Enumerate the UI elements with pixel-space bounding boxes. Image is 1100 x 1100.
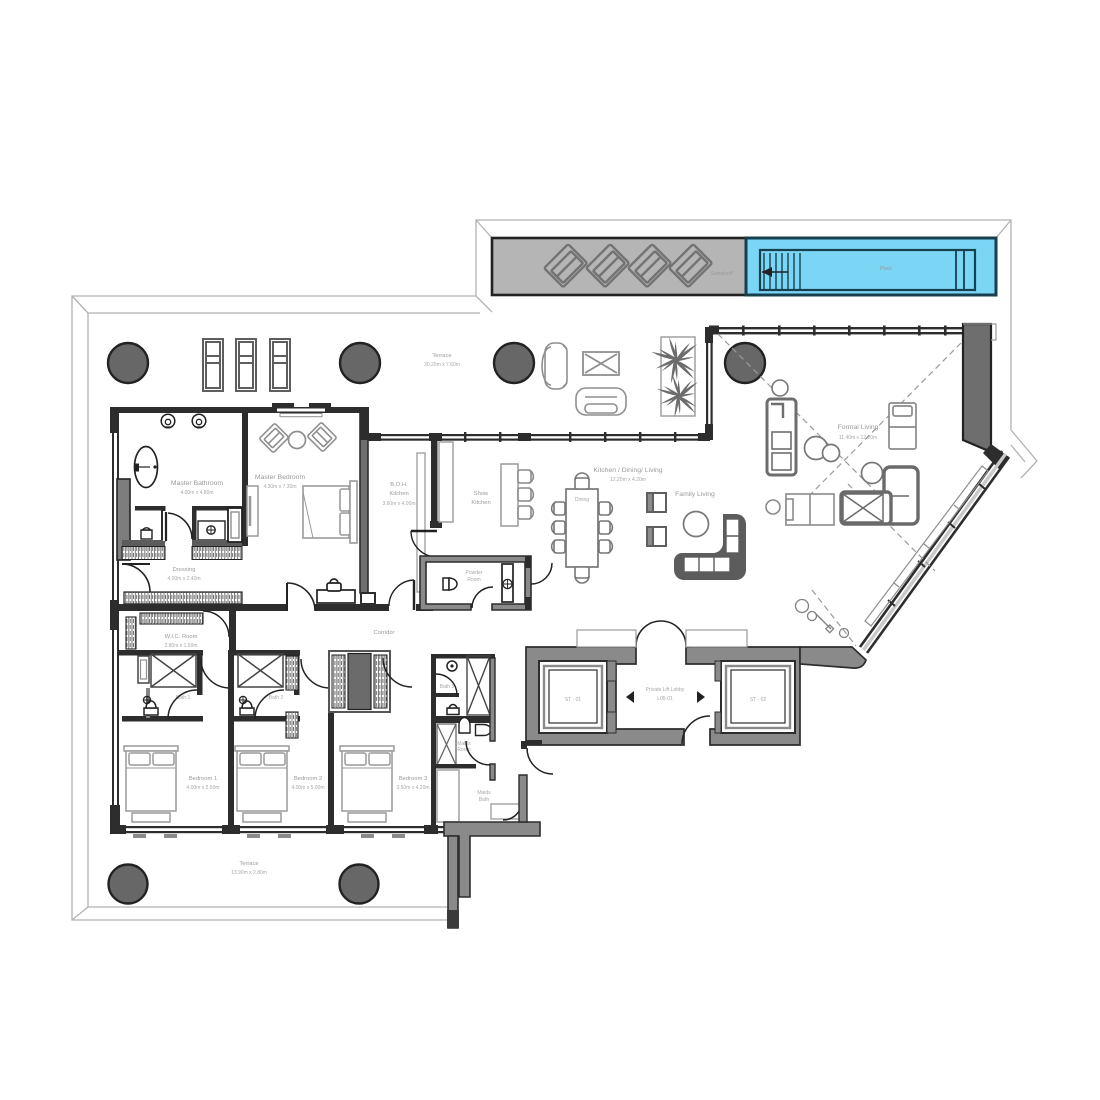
- svg-text:Kitchen: Kitchen: [471, 500, 490, 506]
- svg-text:Private Lift Lobby: Private Lift Lobby: [646, 687, 685, 693]
- svg-text:ST - 02: ST - 02: [750, 697, 767, 703]
- svg-text:Master Bedroom: Master Bedroom: [255, 474, 306, 481]
- svg-text:Corridor: Corridor: [374, 630, 395, 636]
- svg-text:Show: Show: [474, 491, 489, 497]
- svg-text:12.20m x 4.20m: 12.20m x 4.20m: [610, 477, 646, 483]
- svg-text:L05-01: L05-01: [657, 696, 673, 702]
- svg-text:11.40m x 12.20m: 11.40m x 12.20m: [839, 435, 877, 441]
- svg-text:Bath 2: Bath 2: [269, 695, 284, 701]
- svg-text:4.00m x 5.00m: 4.00m x 5.00m: [291, 785, 324, 791]
- svg-text:Dining: Dining: [575, 497, 589, 503]
- svg-text:2.80m x 1.50m: 2.80m x 1.50m: [164, 643, 197, 649]
- svg-text:4.00m x 2.40m: 4.00m x 2.40m: [167, 576, 200, 582]
- svg-text:3.50m x 4.20m: 3.50m x 4.20m: [396, 785, 429, 791]
- svg-text:Kitchen: Kitchen: [389, 491, 408, 497]
- svg-text:Bedroom 2: Bedroom 2: [294, 776, 322, 782]
- svg-text:Room: Room: [467, 577, 480, 583]
- svg-text:Master Bathroom: Master Bathroom: [171, 480, 223, 487]
- svg-text:Maids: Maids: [477, 790, 491, 796]
- svg-text:Sunshelf: Sunshelf: [710, 271, 733, 277]
- svg-text:Bath: Bath: [479, 797, 490, 803]
- svg-text:4.00m x 4.80m: 4.00m x 4.80m: [180, 490, 213, 496]
- svg-text:Family Living: Family Living: [675, 491, 715, 498]
- svg-text:Terrace: Terrace: [239, 861, 258, 867]
- svg-text:13.90m x 2.80m: 13.90m x 2.80m: [231, 870, 267, 876]
- svg-text:W.I.C. Room: W.I.C. Room: [165, 634, 198, 640]
- svg-text:Pool: Pool: [880, 266, 892, 272]
- svg-text:3.60m x 4.00m: 3.60m x 4.00m: [382, 501, 415, 507]
- svg-text:Formal Living: Formal Living: [838, 424, 879, 431]
- svg-text:4.30m x 7.30m: 4.30m x 7.30m: [263, 484, 296, 490]
- svg-text:Kitchen / Dining/ Living: Kitchen / Dining/ Living: [593, 467, 662, 474]
- svg-text:Powder: Powder: [466, 570, 483, 576]
- svg-text:Bedroom 1: Bedroom 1: [189, 776, 217, 782]
- svg-text:Bedroom 3: Bedroom 3: [399, 776, 427, 782]
- svg-text:4.00m x 5.50m: 4.00m x 5.50m: [186, 785, 219, 791]
- svg-text:Bath 3: Bath 3: [440, 684, 455, 690]
- svg-text:Dressing: Dressing: [173, 567, 196, 573]
- svg-text:Terrace: Terrace: [432, 353, 451, 359]
- svg-text:B.O.H.: B.O.H.: [390, 482, 408, 488]
- svg-text:30.20m x 7.60m: 30.20m x 7.60m: [424, 362, 460, 368]
- svg-text:ST - 01: ST - 01: [565, 697, 582, 703]
